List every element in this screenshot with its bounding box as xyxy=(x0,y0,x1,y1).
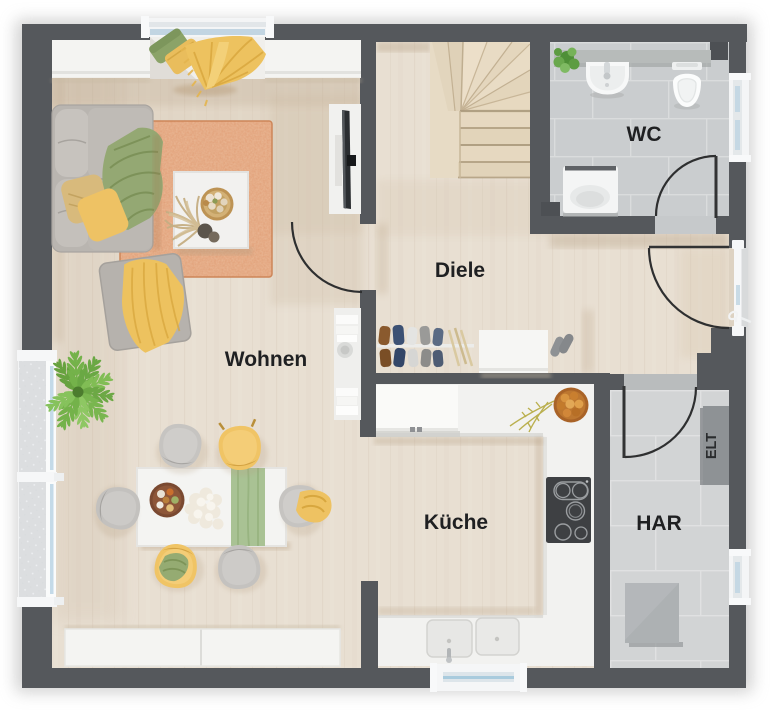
svg-text:Diele: Diele xyxy=(435,259,485,282)
svg-text:WC: WC xyxy=(627,123,662,146)
svg-text:HAR: HAR xyxy=(636,512,682,535)
svg-text:ELT: ELT xyxy=(704,433,720,459)
svg-text:Wohnen: Wohnen xyxy=(225,348,307,371)
svg-text:Küche: Küche xyxy=(424,511,488,534)
